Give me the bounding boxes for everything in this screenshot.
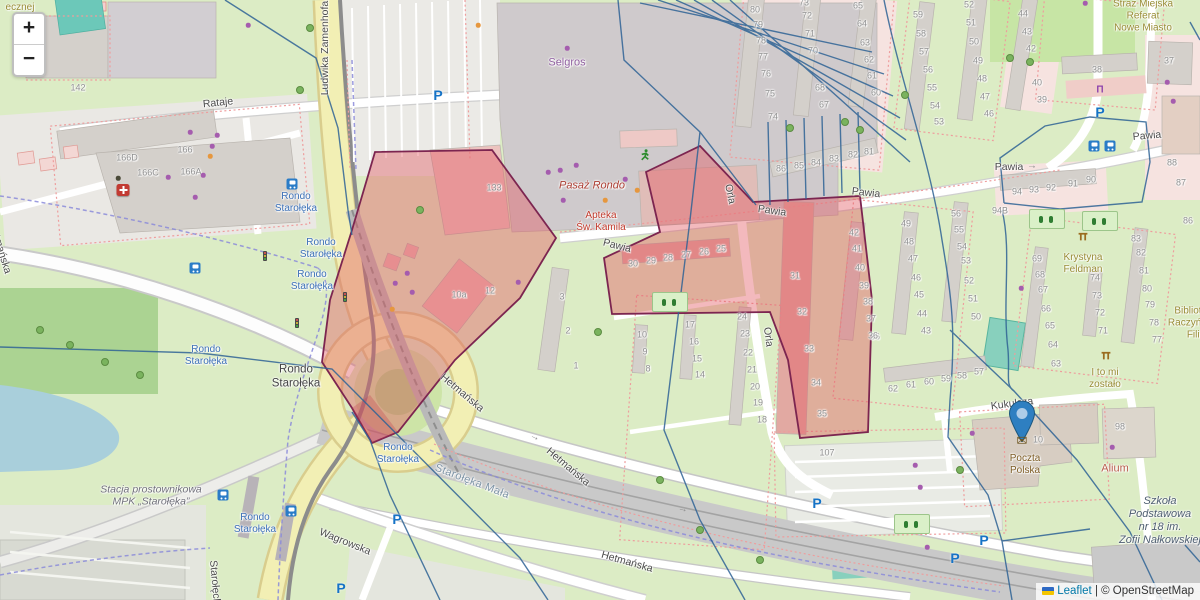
map-tiles: [0, 0, 1200, 600]
zoom-in-button[interactable]: +: [14, 14, 44, 45]
zoom-control: + −: [12, 12, 46, 77]
attribution-separator: |: [1092, 585, 1101, 597]
leaflet-link[interactable]: Leaflet: [1057, 585, 1092, 597]
zoom-out-button[interactable]: −: [14, 45, 44, 75]
attribution-bar: Leaflet | © OpenStreetMap: [1036, 583, 1200, 600]
map-canvas[interactable]: RatajeLudwika ZamenhofaHetmańskaHetmańsk…: [0, 0, 1200, 600]
ukraine-flag-icon: [1042, 587, 1054, 595]
osm-attribution: © OpenStreetMap: [1101, 585, 1194, 597]
